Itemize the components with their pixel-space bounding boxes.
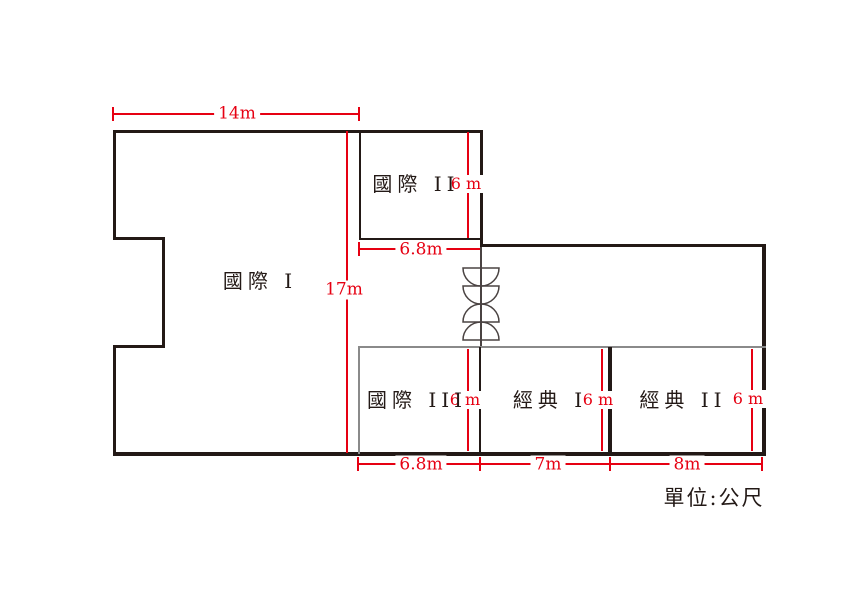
dimension-label-6m-classic2: 6 m	[729, 390, 767, 408]
dimension-label-14m: 14m	[214, 105, 260, 124]
room-label-classic2: 經典 II	[639, 390, 726, 410]
dimension-tick	[358, 107, 360, 121]
dimension-label-7m: 7m	[531, 456, 566, 475]
intl2-left-wall	[359, 130, 361, 240]
outer-wall-top	[113, 130, 482, 133]
dimension-label-8m: 8m	[670, 456, 705, 475]
outer-wall-right	[762, 244, 766, 456]
room-label-intl2: 國際 II	[372, 174, 459, 194]
dimension-tick	[761, 457, 763, 471]
room-label-intl1: 國際 I	[223, 271, 297, 291]
unit-note: 單位:公尺	[663, 482, 764, 512]
bottom-rooms-top-wall	[358, 346, 766, 348]
double-swing-doors-icon	[458, 262, 504, 344]
notch-wall-bottom	[113, 345, 165, 348]
notch-wall-top	[113, 237, 165, 240]
dimension-tick	[112, 107, 114, 121]
dimension-label-6-8m-top: 6.8m	[395, 241, 446, 260]
notch-wall-right	[162, 237, 165, 348]
floor-plan-canvas: 14m 17m 6.8m 6 m 6 m 6 m 6 m 6.8m 7m 8m …	[0, 0, 842, 596]
dimension-label-6-8m-bottom: 6.8m	[395, 456, 446, 475]
room-label-intl3: 國際 III	[367, 390, 467, 410]
room-label-classic1: 經典 I	[513, 390, 587, 410]
intl3-left-wall	[358, 346, 360, 454]
dimension-label-17m: 17m	[321, 281, 367, 300]
dimension-tick	[357, 457, 359, 471]
dimension-tick	[609, 457, 611, 471]
dimension-tick	[479, 457, 481, 471]
dimension-tick	[358, 242, 360, 256]
outer-wall-left-lower	[113, 345, 116, 456]
outer-wall-left-upper	[113, 130, 116, 240]
right-section-top-wall	[481, 244, 766, 247]
